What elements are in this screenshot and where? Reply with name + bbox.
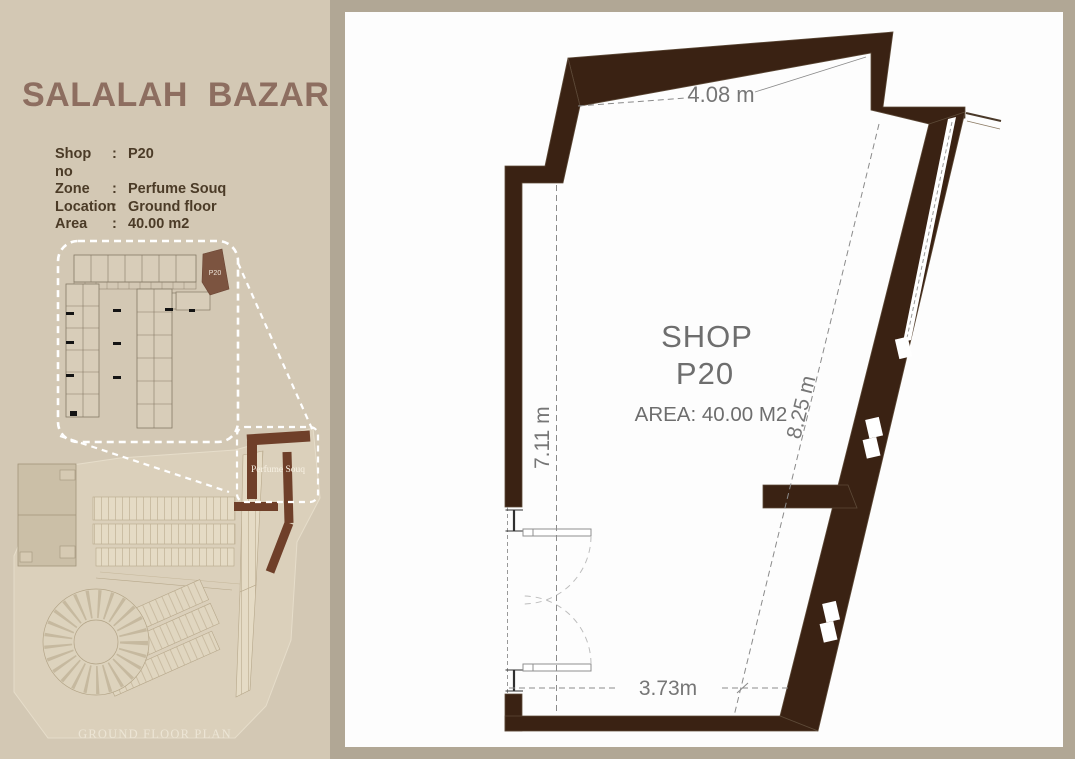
wall-bottom [505, 716, 818, 731]
wall-interior-stub [763, 485, 857, 508]
detail-value: Perfume Souq [128, 181, 226, 199]
detail-value: 40.00 m2 [128, 216, 189, 234]
shop-labels: SHOP P20 AREA: 40.00 M2 [635, 319, 788, 426]
dim-label-top: 4.08 m [687, 82, 754, 107]
adjacent-wall-lines [966, 113, 1001, 129]
detail-label: Location [55, 199, 112, 217]
detail-colon: : [112, 216, 128, 234]
site-round-cluster [43, 589, 149, 695]
detail-row-zone: Zone : Perfume Souq [55, 181, 226, 199]
detail-row-location: Location : Ground floor [55, 199, 226, 217]
detail-label: Shop no [55, 146, 112, 181]
souq-zone-label: Perfume Souq [251, 464, 305, 475]
detail-value: Ground floor [128, 199, 217, 217]
site-building-block [18, 464, 76, 566]
detail-label: Area [55, 216, 112, 234]
detail-label: Zone [55, 181, 112, 199]
floor-plan-svg: 4.08 m 7.11 m 8.25 m 3.73m SHOP P20 AREA… [345, 12, 1063, 747]
shop-label-line2: P20 [676, 356, 734, 391]
brochure-page: { "colors": { "frame_bg": "#b1a795", "si… [0, 0, 1075, 759]
entrance-door [506, 507, 592, 694]
shop-label-line1: SHOP [661, 319, 753, 354]
inset-shop-units [66, 255, 210, 428]
detail-row-area: Area : 40.00 m2 [55, 216, 226, 234]
wall-top [568, 32, 965, 124]
dim-label-left: 7.11 m [531, 406, 554, 469]
dimension-labels: 4.08 m 7.11 m 8.25 m 3.73m [531, 82, 820, 700]
shop-walls [505, 32, 965, 731]
detail-colon: : [112, 181, 128, 199]
detail-row-shop-no: Shop no : P20 [55, 146, 226, 181]
project-title: SALALAH BAZAR [22, 76, 329, 115]
inset-connector-line [238, 263, 313, 431]
detail-colon: : [112, 146, 128, 181]
dim-label-right: 8.25 m [783, 373, 821, 441]
detail-colon: : [112, 199, 128, 217]
inset-p20-label: P20 [209, 270, 222, 277]
door-jamb [506, 510, 524, 531]
inset-shop-p20: P20 [202, 249, 229, 295]
ground-floor-caption: GROUND FLOOR PLAN [70, 727, 240, 742]
sidebar: Perfume Souq [0, 0, 330, 759]
detail-value: P20 [128, 146, 154, 181]
floor-plan-panel: 4.08 m 7.11 m 8.25 m 3.73m SHOP P20 AREA… [345, 12, 1063, 747]
shop-area-label: AREA: 40.00 M2 [635, 403, 788, 426]
shop-details: Shop no : P20 Zone : Perfume Souq Locati… [55, 146, 226, 234]
dim-label-bottom: 3.73m [639, 677, 697, 700]
